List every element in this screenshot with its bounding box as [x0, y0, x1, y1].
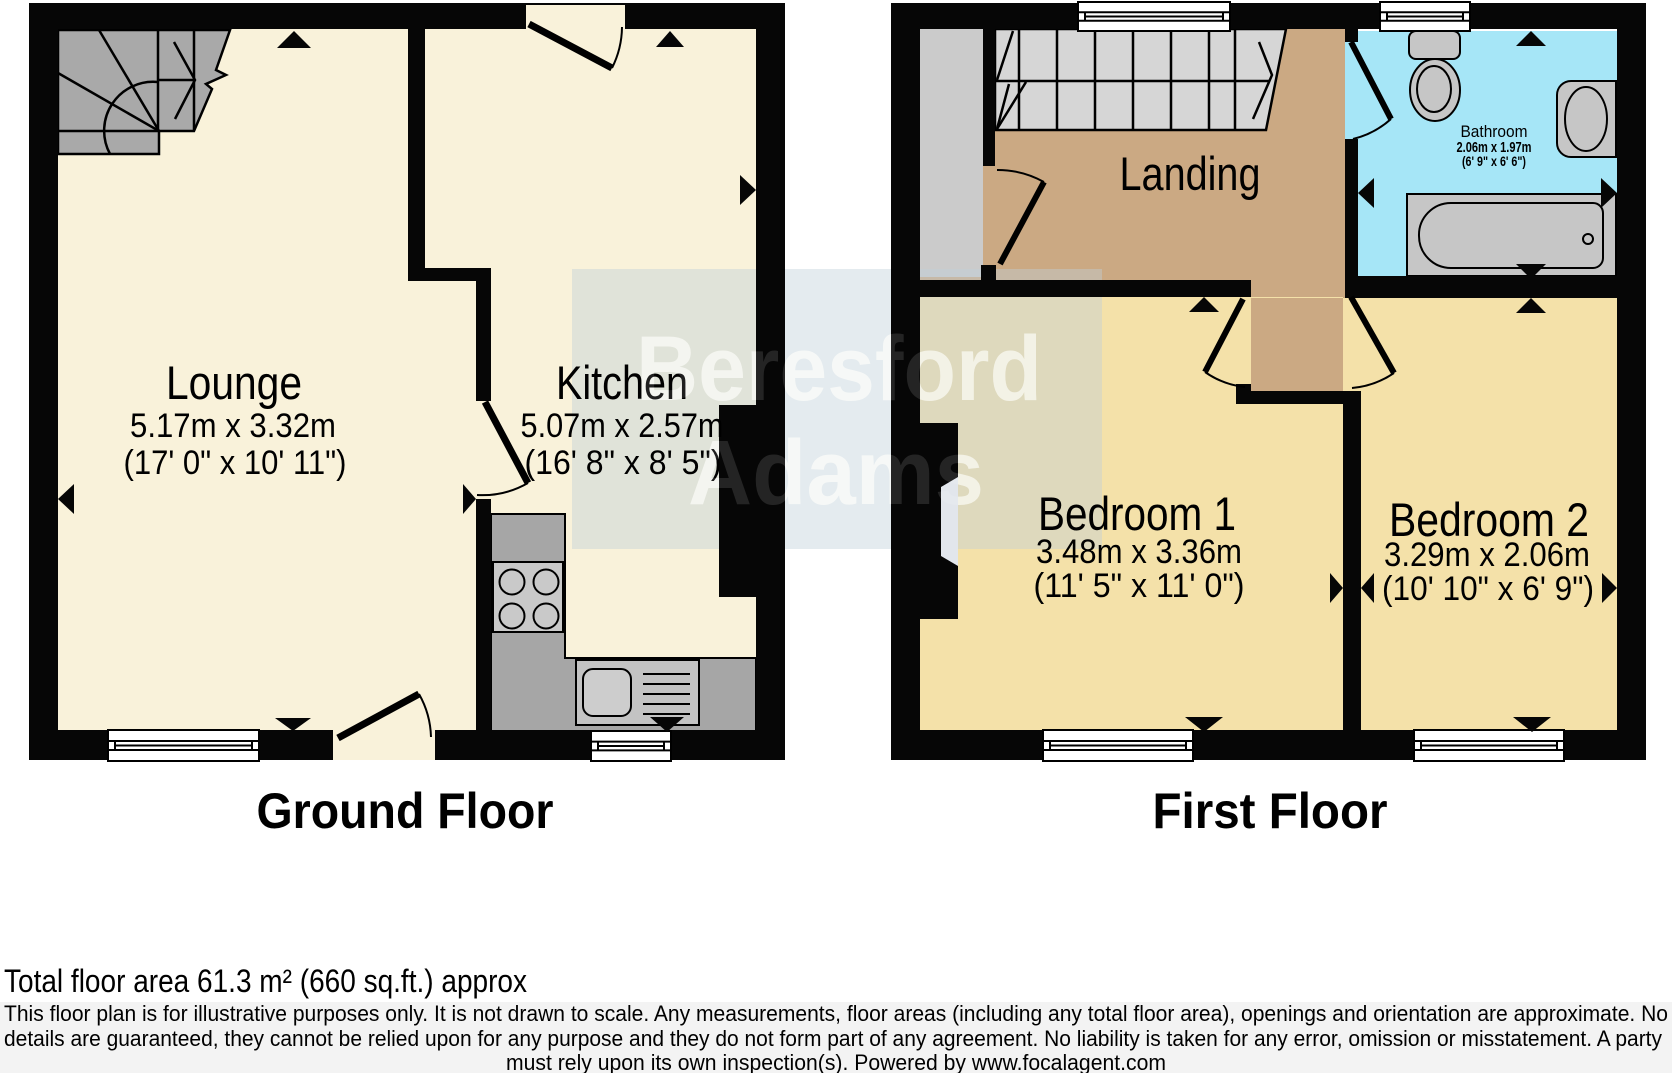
svg-text:Beresford: Beresford: [636, 318, 1042, 420]
svg-text:Lounge: Lounge: [166, 356, 302, 409]
svg-text:(10' 10" x 6' 9"): (10' 10" x 6' 9"): [1382, 570, 1594, 608]
svg-text:(6' 9" x 6' 6"): (6' 9" x 6' 6"): [1462, 154, 1526, 169]
svg-text:details are guaranteed, they c: details are guaranteed, they cannot be r…: [4, 1026, 1662, 1051]
svg-text:First Floor: First Floor: [1153, 783, 1388, 839]
svg-text:must rely upon its own inspect: must rely upon its own inspection(s). Po…: [506, 1050, 1166, 1073]
svg-text:(11' 5" x 11' 0"): (11' 5" x 11' 0"): [1034, 567, 1245, 605]
svg-text:Ground Floor: Ground Floor: [257, 783, 554, 839]
svg-text:This floor plan is for illustr: This floor plan is for illustrative purp…: [4, 1001, 1668, 1026]
svg-text:(17' 0" x 10' 11"): (17' 0" x 10' 11"): [124, 444, 347, 482]
svg-text:Adams: Adams: [688, 422, 984, 524]
svg-text:5.17m x 3.32m: 5.17m x 3.32m: [130, 407, 336, 445]
svg-text:Landing: Landing: [1120, 147, 1261, 200]
svg-text:3.29m x 2.06m: 3.29m x 2.06m: [1384, 536, 1590, 574]
svg-text:Bathroom: Bathroom: [1461, 122, 1528, 141]
svg-text:3.48m x 3.36m: 3.48m x 3.36m: [1036, 533, 1242, 571]
svg-text:Total floor area 61.3 m² (660: Total floor area 61.3 m² (660 sq.ft.) ap…: [4, 963, 527, 999]
